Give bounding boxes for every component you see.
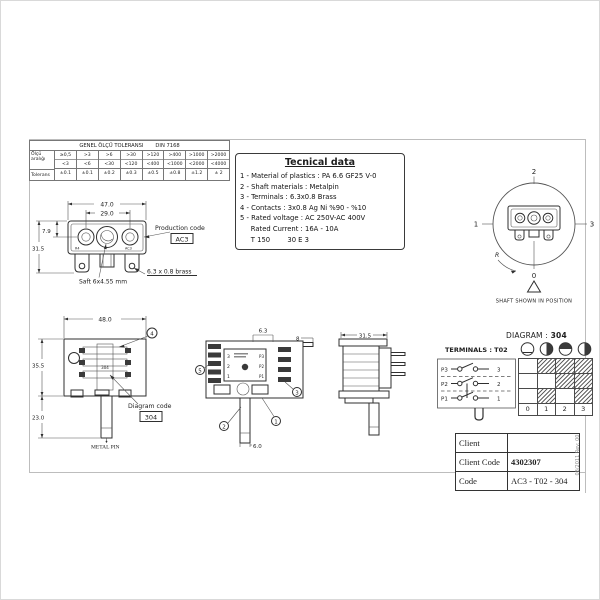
- knob-position-icons: [518, 341, 594, 357]
- tolerance-column: >30<120±0.3: [121, 151, 143, 180]
- plate-row-left-2: 2: [227, 364, 230, 370]
- tolerance-range-upper: >1000: [186, 151, 207, 160]
- contact-open-cell: [537, 373, 557, 389]
- tolerance-range-upper: ≥0,5: [55, 151, 76, 160]
- contact-grid-row: [518, 358, 595, 374]
- callout-marker-2: 2: [222, 424, 226, 430]
- tolerance-range-upper: >6: [99, 151, 120, 160]
- technical-data-title: Tecnical data: [236, 157, 404, 168]
- client-value: [508, 434, 580, 453]
- knob-position-icon-2: [559, 343, 572, 356]
- pole-label: P1: [441, 397, 448, 403]
- front-view-body: R4 AC3: [68, 221, 146, 272]
- tolerance-table-header: GENEL ÖLÇÜ TOLERANSI DIN 7168: [30, 141, 229, 151]
- tolerance-range-upper: >30: [121, 151, 142, 160]
- dim-shaft-width: 6.0: [253, 444, 262, 450]
- bottom-view-drawing: 48.0 35.5 23.0 304: [31, 311, 211, 451]
- pole-label: P3: [441, 368, 448, 374]
- terminal-number: 1: [497, 397, 501, 403]
- tolerance-range-upper: >2000: [208, 151, 229, 160]
- dim-height: 31.5: [32, 247, 45, 253]
- tolerance-range-label-line2: aralığı: [31, 157, 54, 162]
- position-number: 0: [518, 403, 538, 416]
- tolerance-value: ±0.2: [99, 169, 120, 179]
- tolerance-value: ±0.1: [77, 169, 98, 179]
- code-value: AC3 - T02 - 304: [508, 472, 580, 491]
- callout-marker-3: 3: [295, 390, 299, 396]
- tolerance-value: ±0.1: [55, 169, 76, 179]
- contact-closed-cell: [537, 358, 557, 374]
- tolerance-range-lower: <6: [77, 160, 98, 169]
- dim-terminal-width: 6.3: [259, 329, 268, 335]
- front-view-notes: Production code AC3 6.3 x 0.8 brass Saft…: [79, 225, 205, 286]
- diagram-code-label: Diagram code: [128, 403, 172, 410]
- tolerance-value: ± 2: [208, 169, 229, 179]
- tolerance-range-lower: <2000: [186, 160, 207, 169]
- tolerance-columns: ≥0,5<3±0.1>3<6±0.1>6<30±0.2>30<120±0.3>1…: [55, 151, 229, 180]
- title-block-row-code: Code AC3 - T02 - 304: [456, 472, 580, 491]
- technical-data-line: 4 - Contacts : 3x0.8 Ag Ni %90 - %10: [240, 203, 404, 214]
- knob-position-icon-3: [578, 343, 591, 356]
- position-number: 3: [574, 403, 594, 416]
- tolerance-column: >120<400±0.5: [143, 151, 165, 180]
- production-code-label: Production code: [155, 225, 205, 232]
- face-mark-right: AC3: [125, 247, 132, 251]
- contact-closed-cell: [574, 373, 594, 389]
- title-block: Client Client Code 4302307 Code AC3 - T0…: [455, 433, 580, 491]
- position-number-row: 0123: [518, 403, 595, 416]
- tolerance-column: >1000<2000±1.2: [186, 151, 208, 180]
- tolerance-range-label: Ölçü aralığı: [30, 151, 54, 170]
- metal-pin-label: METAL PIN: [91, 445, 120, 451]
- knob-position-icon-1: [540, 343, 553, 356]
- technical-data-line: Rated Current : 16A - 10A: [240, 224, 404, 235]
- switch-row-p1: P1 1: [441, 392, 501, 402]
- dim-shaft-offset: 7.9: [42, 229, 51, 235]
- diagram-title-value: 304: [551, 331, 567, 340]
- tolerance-table: GENEL ÖLÇÜ TOLERANSI DIN 7168 Ölçü aralı…: [29, 140, 230, 181]
- position-label-3: 3: [590, 221, 594, 229]
- dim-pin-length: 23.0: [32, 416, 45, 422]
- top-view-drawing: 3 2 1 P3 P2 P1 6.3 8 6.0 5: [196, 321, 321, 451]
- front-view-drawing: 47.0 29.0 7.9 31.5 R4 AC3: [31, 196, 231, 298]
- pole-label: P2: [441, 382, 448, 388]
- tolerance-value: ±1.2: [186, 169, 207, 179]
- contact-open-cell: [555, 388, 575, 404]
- face-mark-left: R4: [75, 247, 80, 251]
- diagram-title-label: DIAGRAM :: [506, 331, 548, 340]
- dim-width: 48.0: [98, 316, 112, 323]
- index-triangle-icon: [528, 281, 541, 292]
- top-view-dimensions: 6.3 8 6.0: [240, 329, 313, 451]
- tolerance-range-lower: <1000: [164, 160, 185, 169]
- position-label-0: 0: [532, 272, 536, 280]
- code-label: Code: [456, 472, 508, 491]
- shaft-position-switch-body: [508, 206, 560, 240]
- knob-position-icon-0: [521, 343, 534, 356]
- production-code-value: AC3: [175, 235, 188, 243]
- tolerance-column: >400<1000±0.8: [164, 151, 186, 180]
- technical-data-line: 2 - Shaft materials : Metalpin: [240, 182, 404, 193]
- tolerance-table-standard: DIN 7168: [155, 143, 179, 149]
- tolerance-value: ±0.5: [143, 169, 164, 179]
- technical-data-line: 3 - Terminals : 6.3x0.8 Brass: [240, 192, 404, 203]
- tolerance-range-upper: >3: [77, 151, 98, 160]
- side-view-dimensions: 31.5: [341, 332, 387, 339]
- diagram-code-value: 304: [145, 413, 157, 421]
- rotation-mark: R: [495, 252, 499, 259]
- dim-height: 35.5: [32, 364, 45, 370]
- dim-width: 47.0: [100, 201, 114, 208]
- tolerance-value: ±0.3: [121, 169, 142, 179]
- tolerance-range-lower: <3: [55, 160, 76, 169]
- tolerance-column: ≥0,5<3±0.1: [55, 151, 77, 180]
- position-number: 2: [555, 403, 575, 416]
- tolerance-value: ±0.8: [164, 169, 185, 179]
- revision-note: 08/2011 Rev: 00: [575, 423, 581, 487]
- switch-row-p3: P3 3: [441, 363, 501, 373]
- dim-hole-spacing: 29.0: [100, 210, 114, 217]
- diagram-title: DIAGRAM : 304: [506, 331, 591, 340]
- side-view-drawing: 31.5: [331, 319, 411, 444]
- client-code-value: 4302307: [508, 453, 580, 472]
- tolerance-row-labels: Ölçü aralığı Tolerans: [30, 151, 55, 180]
- shaft-symbol-icon: [475, 408, 483, 420]
- position-label-2: 2: [532, 168, 536, 176]
- drawing-sheet: GENEL ÖLÇÜ TOLERANSI DIN 7168 Ölçü aralı…: [0, 0, 600, 600]
- technical-data-line: T 150 30 E 3: [240, 235, 404, 246]
- contact-open-cell: [518, 358, 538, 374]
- shaft-position-diagram: 2 1 3 0 R SHAFT SHOWN IN POSITION: [459, 161, 600, 309]
- position-number: 1: [537, 403, 557, 416]
- callout-marker-1: 1: [274, 419, 278, 425]
- dim-height: 31.5: [359, 333, 372, 339]
- contact-closed-cell: [555, 373, 575, 389]
- title-block-row-client: Client: [456, 434, 580, 453]
- contact-closed-cell: [555, 358, 575, 374]
- plate-row-left-3: 3: [227, 354, 230, 360]
- dim-terminal-length: 8: [296, 337, 300, 343]
- tolerance-range-upper: >400: [164, 151, 185, 160]
- tolerance-range-upper: >120: [143, 151, 164, 160]
- tolerance-table-title: GENEL ÖLÇÜ TOLERANSI: [79, 143, 143, 149]
- terminal-note: 6.3 x 0.8 brass: [147, 269, 192, 276]
- client-code-label: Client Code: [456, 453, 508, 472]
- shaft-note: Saft 6x4.55 mm: [79, 279, 127, 286]
- tolerance-range-lower: <30: [99, 160, 120, 169]
- tolerance-column: >6<30±0.2: [99, 151, 121, 180]
- bottom-view-body: 304: [64, 339, 146, 443]
- plate-row-right-p1: P1: [259, 374, 264, 379]
- contact-closed-cell: [574, 358, 594, 374]
- switch-row-p2: P2 2: [441, 378, 501, 388]
- technical-data-lines: 1 - Material of plastics : PA 6.6 GF25 V…: [236, 168, 404, 245]
- title-block-row-client-code: Client Code 4302307: [456, 453, 580, 472]
- tolerance-column: >2000<4000± 2: [208, 151, 229, 180]
- plate-row-right-p2: P2: [259, 364, 264, 369]
- inner-diagram-code: 304: [101, 365, 109, 370]
- contact-grid-row: [518, 388, 595, 404]
- callout-marker-4: 4: [150, 332, 154, 338]
- drawing-frame-right-extension: [585, 473, 586, 493]
- technical-data-box: Tecnical data 1 - Material of plastics :…: [235, 153, 405, 250]
- plate-row-left-1: 1: [227, 374, 230, 380]
- plate-row-right-p3: P3: [259, 354, 264, 359]
- rotation-arrow-icon: [498, 260, 516, 271]
- tolerance-range-lower: <400: [143, 160, 164, 169]
- callout-marker-5: 5: [198, 368, 202, 374]
- contact-closed-cell: [537, 388, 557, 404]
- contact-grid-row: [518, 373, 595, 389]
- terminal-number: 2: [497, 382, 501, 388]
- tolerance-value-label: Tolerans: [30, 170, 54, 180]
- technical-data-line: 5 - Rated voltage : AC 250V-AC 400V: [240, 213, 404, 224]
- tolerance-column: >3<6±0.1: [77, 151, 99, 180]
- terminals-label: TERMINALS : T02: [445, 346, 508, 354]
- side-view-body: [339, 339, 405, 435]
- switch-schematic: P3 3 P2 2 P1 1: [436, 356, 518, 424]
- contact-open-cell: [518, 373, 538, 389]
- client-label: Client: [456, 434, 508, 453]
- terminal-number: 3: [497, 368, 501, 374]
- position-label-1: 1: [474, 221, 478, 229]
- tolerance-range-lower: <120: [121, 160, 142, 169]
- contact-open-cell: [518, 388, 538, 404]
- contact-grid: 0123: [518, 358, 595, 416]
- shaft-position-caption: SHAFT SHOWN IN POSITION: [496, 299, 572, 305]
- contact-closed-cell: [574, 388, 594, 404]
- tolerance-range-lower: <4000: [208, 160, 229, 169]
- bottom-view-notes: 4 Diagram code 304 METAL PIN: [91, 328, 172, 451]
- technical-data-line: 1 - Material of plastics : PA 6.6 GF25 V…: [240, 171, 404, 182]
